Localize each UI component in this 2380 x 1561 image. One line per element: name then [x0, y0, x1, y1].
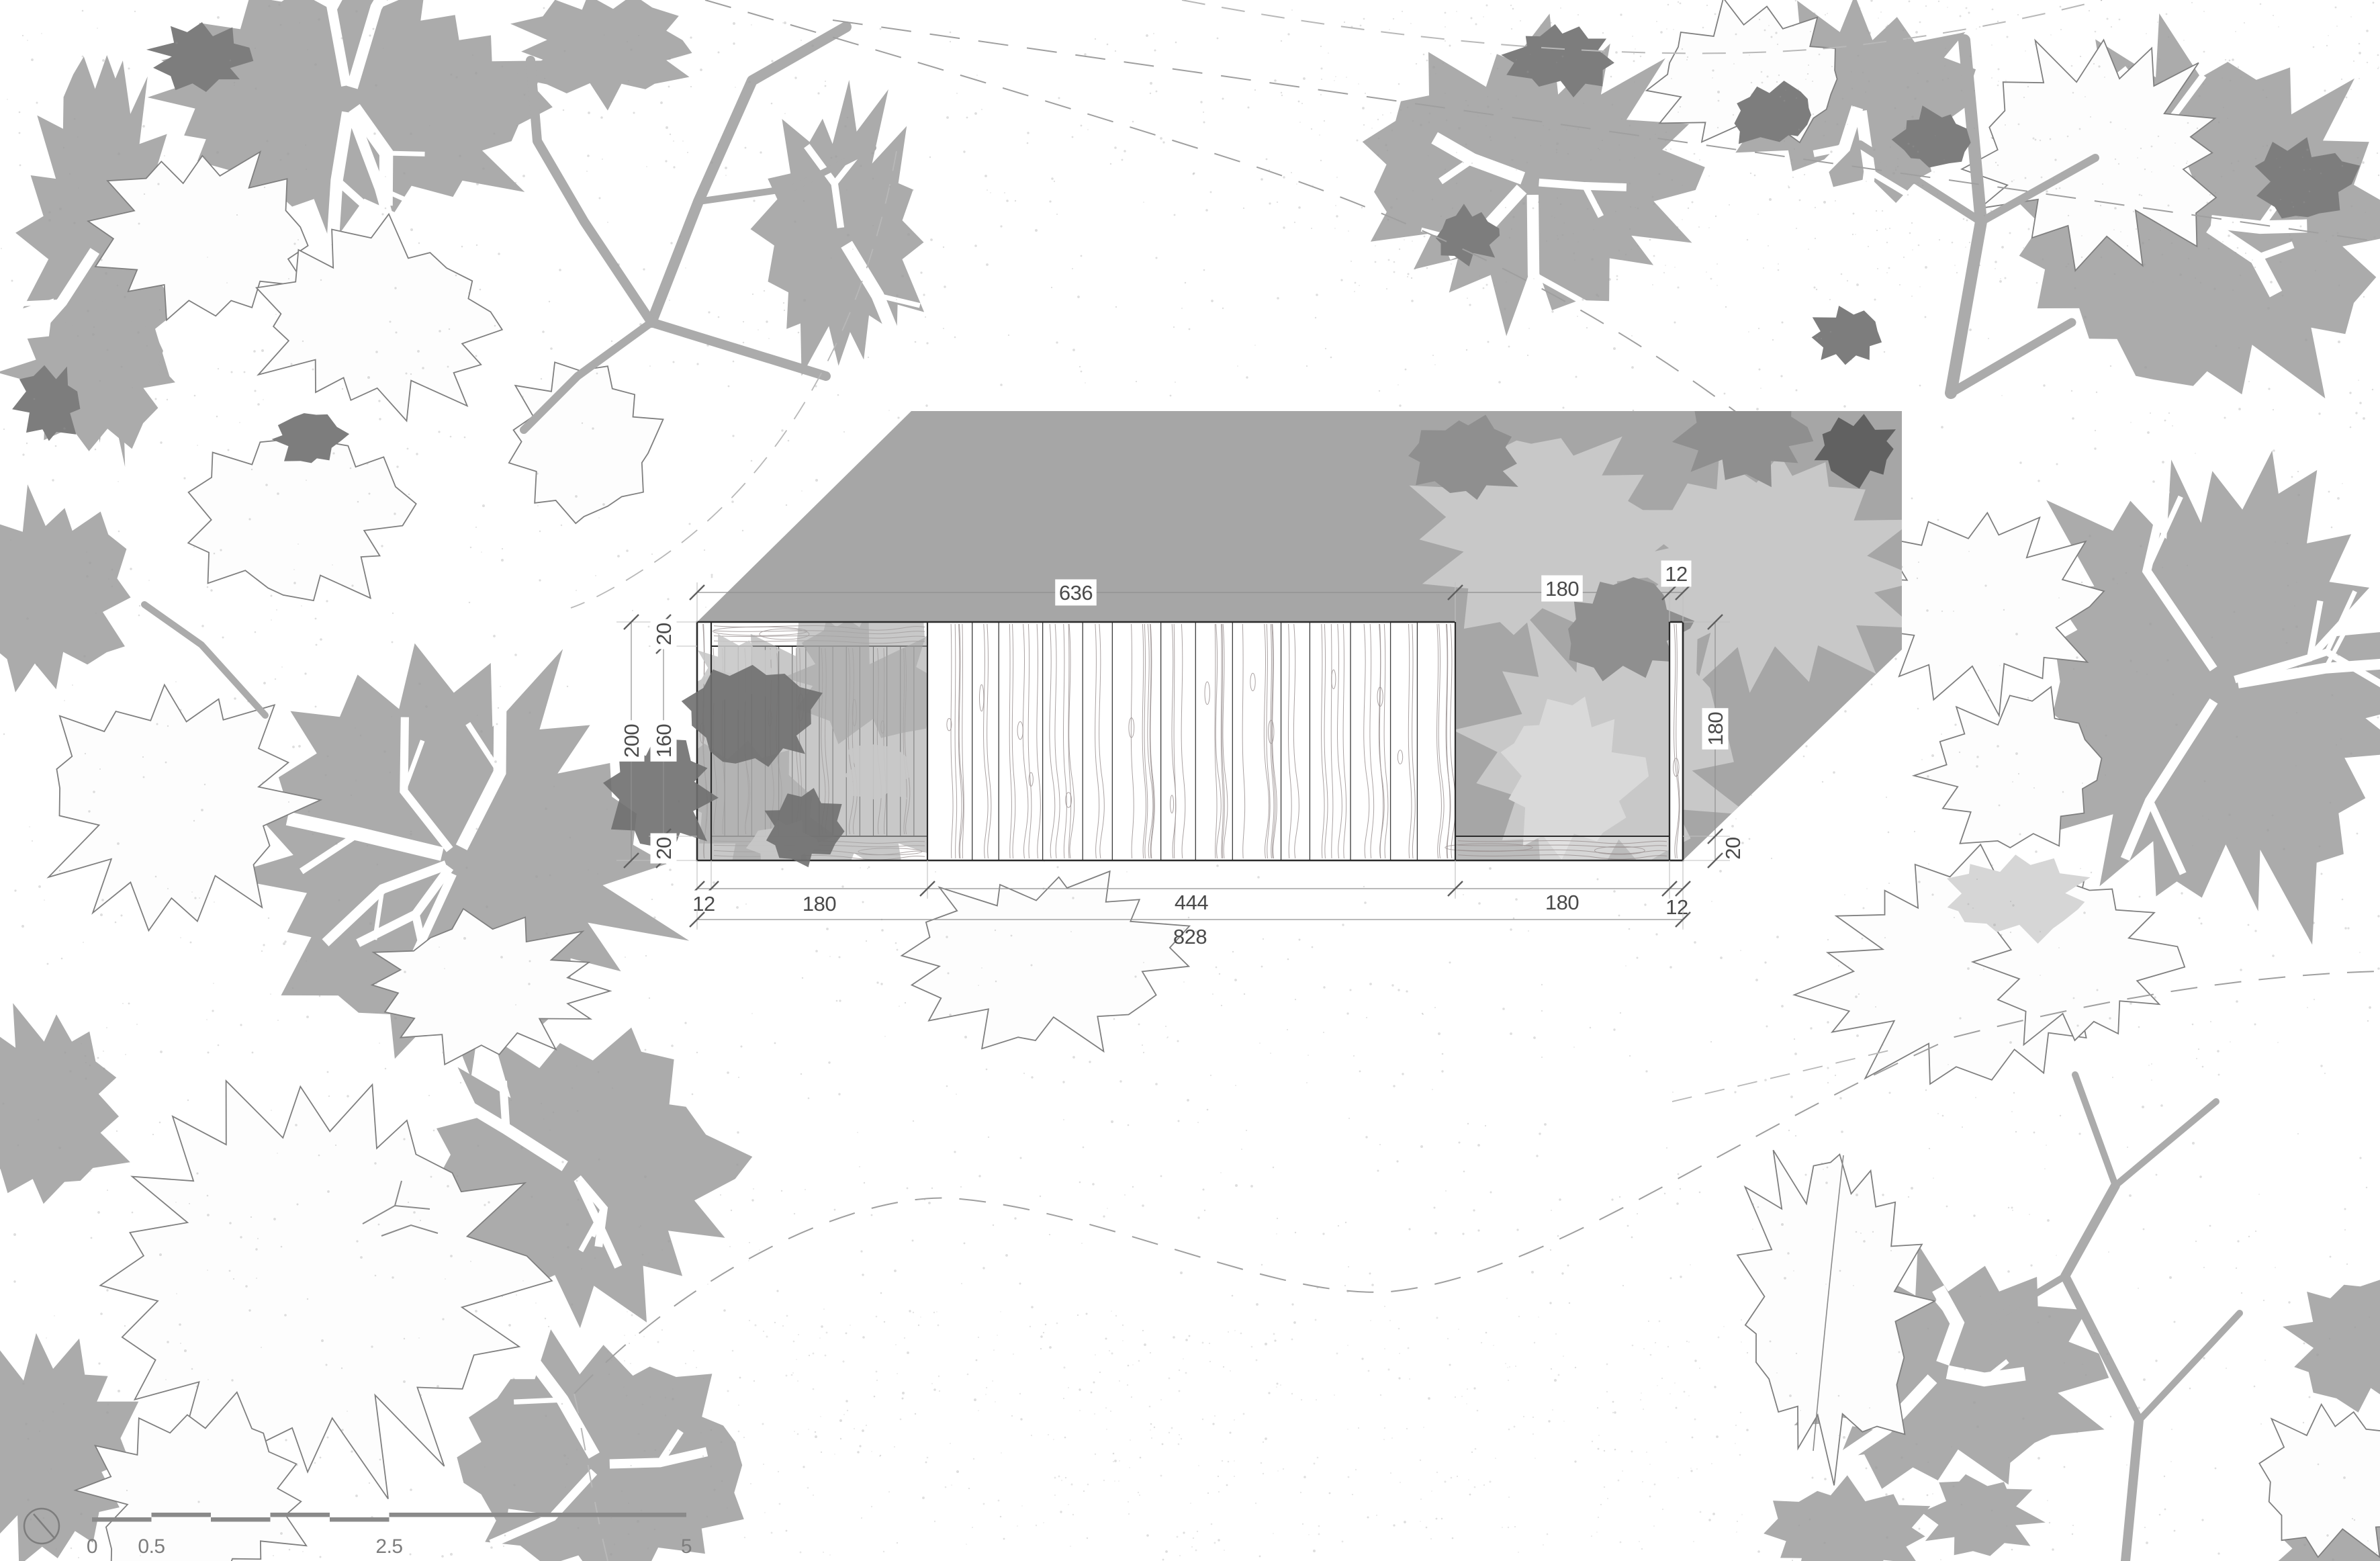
stipple-dot — [271, 595, 273, 597]
stipple-dot — [1561, 1272, 1563, 1274]
stipple-dot — [2060, 1115, 2061, 1116]
stipple-dot — [1190, 1503, 1191, 1504]
stipple-dot — [302, 341, 304, 342]
stipple-dot — [1587, 208, 1589, 210]
stipple-dot — [2374, 236, 2376, 238]
stipple-dot — [107, 1190, 108, 1191]
stipple-dot — [2270, 281, 2273, 283]
stipple-dot — [1776, 1372, 1777, 1373]
stipple-dot — [894, 1269, 897, 1272]
stipple-dot — [383, 48, 384, 49]
stipple-dot — [1393, 1524, 1395, 1526]
stipple-dot — [2149, 623, 2152, 625]
stipple-dot — [617, 263, 620, 266]
stipple-dot — [1794, 148, 1795, 150]
stipple-dot — [155, 876, 157, 878]
stipple-dot — [1345, 1222, 1346, 1223]
stipple-dot — [1387, 219, 1389, 220]
stipple-dot — [794, 220, 796, 222]
stipple-dot — [2335, 7, 2337, 9]
stipple-dot — [793, 1341, 795, 1343]
stipple-dot — [960, 1186, 962, 1188]
stipple-dot — [1557, 238, 1559, 240]
stipple-dot — [1223, 1366, 1224, 1368]
stipple-dot — [2240, 969, 2242, 971]
stipple-dot — [933, 1312, 935, 1313]
stipple-dot — [1771, 858, 1772, 859]
stipple-dot — [2226, 1368, 2227, 1369]
stipple-dot — [920, 271, 922, 273]
stipple-dot — [404, 1338, 405, 1339]
stipple-dot — [1608, 278, 1611, 281]
stipple-dot — [1756, 408, 1759, 410]
stipple-dot — [1000, 1311, 1001, 1312]
stipple-dot — [2162, 254, 2163, 255]
stipple-dot — [77, 335, 79, 337]
stipple-dot — [183, 477, 185, 479]
stipple-dot — [2336, 26, 2338, 27]
stipple-dot — [130, 568, 132, 570]
stipple-dot — [1169, 1378, 1171, 1380]
stipple-dot — [2303, 169, 2305, 171]
stipple-dot — [1734, 1091, 1736, 1093]
stipple-dot — [2209, 1225, 2211, 1227]
stipple-dot — [1146, 34, 1148, 37]
stipple-dot — [2303, 1343, 2305, 1345]
stipple-dot — [1882, 1194, 1884, 1196]
stipple-dot — [2023, 97, 2025, 98]
stipple-dot — [190, 942, 192, 944]
stipple-dot — [2094, 1333, 2095, 1334]
stipple-dot — [632, 610, 633, 611]
stipple-dot — [1919, 21, 1921, 24]
stipple-dot — [981, 967, 982, 969]
stipple-dot — [1205, 209, 1208, 212]
stipple-dot — [1937, 519, 1939, 521]
stipple-dot — [447, 366, 449, 368]
stipple-dot — [1625, 965, 1626, 966]
stipple-dot — [261, 950, 263, 952]
stipple-dot — [1093, 1382, 1095, 1384]
stipple-dot — [2089, 10, 2090, 11]
stipple-dot — [207, 586, 209, 588]
stipple-dot — [2279, 167, 2281, 168]
stipple-dot — [966, 117, 968, 119]
stipple-dot — [930, 238, 933, 241]
stipple-dot — [88, 810, 90, 812]
stipple-dot — [2130, 422, 2131, 422]
stipple-dot — [2076, 656, 2078, 659]
stipple-dot — [837, 394, 839, 396]
stipple-dot — [939, 1390, 940, 1392]
stipple-dot — [27, 40, 28, 41]
stipple-dot — [2146, 674, 2148, 675]
stipple-dot — [2291, 476, 2293, 478]
stipple-dot — [815, 1431, 816, 1433]
stipple-dot — [59, 870, 60, 871]
stipple-dot — [392, 613, 394, 614]
stipple-dot — [159, 1122, 161, 1124]
stipple-dot — [803, 200, 805, 202]
stipple-dot — [655, 1449, 657, 1452]
stipple-dot — [2359, 52, 2361, 54]
stipple-dot — [1301, 1399, 1302, 1400]
stipple-dot — [588, 869, 589, 871]
stipple-dot — [2173, 165, 2175, 167]
stipple-dot — [52, 479, 54, 481]
stipple-dot — [537, 505, 539, 506]
stipple-dot — [614, 1544, 616, 1546]
stipple-dot — [725, 167, 727, 169]
stipple-dot — [2228, 234, 2230, 237]
stipple-dot — [1219, 973, 1220, 975]
stipple-dot — [93, 791, 95, 793]
stipple-dot — [1485, 1332, 1487, 1334]
stipple-dot — [826, 1332, 828, 1334]
stipple-dot — [1070, 1546, 1071, 1547]
stipple-dot — [1637, 1213, 1638, 1214]
stipple-dot — [1914, 831, 1915, 832]
stipple-dot — [1903, 257, 1905, 258]
stipple-dot — [1642, 1481, 1643, 1482]
stipple-dot — [779, 1503, 781, 1505]
stipple-dot — [1463, 894, 1464, 895]
stipple-dot — [1136, 381, 1137, 382]
stipple-dot — [1516, 1229, 1518, 1231]
stipple-dot — [2367, 62, 2368, 63]
stipple-dot — [320, 279, 322, 281]
stipple-dot — [1577, 14, 1579, 15]
stipple-dot — [1916, 1443, 1918, 1445]
stipple-dot — [1911, 498, 1913, 500]
stipple-dot — [1160, 137, 1162, 140]
stipple-dot — [1122, 1325, 1124, 1326]
stipple-dot — [2324, 1073, 2326, 1074]
stipple-dot — [2378, 175, 2379, 176]
stipple-dot — [884, 1036, 885, 1036]
stipple-dot — [561, 525, 562, 526]
stipple-dot — [1856, 1194, 1858, 1196]
stipple-dot — [2008, 1207, 2009, 1208]
stipple-dot — [968, 1488, 970, 1489]
stipple-dot — [834, 1209, 836, 1211]
stipple-dot — [1803, 756, 1805, 758]
stipple-dot — [1634, 157, 1635, 159]
stipple-dot — [2017, 14, 2019, 15]
stipple-dot — [1666, 28, 1667, 30]
stipple-dot — [1961, 90, 1962, 91]
stipple-dot — [2248, 924, 2250, 926]
stipple-dot — [97, 1211, 100, 1214]
stipple-dot — [1040, 1348, 1042, 1349]
stipple-dot — [978, 1410, 979, 1411]
stipple-dot — [966, 1544, 967, 1545]
stipple-dot — [64, 1052, 66, 1054]
stipple-dot — [1648, 1321, 1649, 1322]
stipple-dot — [2102, 183, 2103, 185]
stipple-dot — [1306, 1082, 1308, 1083]
stipple-dot — [1095, 38, 1096, 40]
stipple-dot — [1649, 138, 1651, 140]
stipple-dot — [244, 371, 246, 373]
stipple-dot — [1590, 1027, 1591, 1028]
stipple-dot — [2194, 176, 2196, 178]
stipple-dot — [1655, 134, 1656, 135]
stipple-dot — [1095, 1454, 1096, 1455]
stipple-dot — [1487, 341, 1490, 343]
stipple-dot — [946, 936, 948, 938]
stipple-dot — [2082, 783, 2083, 784]
stipple-dot — [1925, 266, 1927, 269]
stipple-dot — [1740, 950, 1741, 951]
stipple-dot — [1754, 175, 1756, 177]
stipple-dot — [642, 1404, 643, 1405]
stipple-dot — [371, 1345, 373, 1347]
stipple-dot — [1432, 199, 1434, 201]
stipple-dot — [1687, 56, 1688, 58]
stipple-dot — [1471, 163, 1473, 164]
stipple-dot — [2203, 114, 2204, 116]
stipple-dot — [1866, 1468, 1868, 1470]
stipple-dot — [373, 28, 375, 30]
stipple-dot — [1466, 1403, 1467, 1404]
stipple-dot — [1546, 240, 1547, 242]
stipple-dot — [753, 199, 755, 202]
stipple-dot — [1997, 21, 1999, 22]
stipple-dot — [2215, 1468, 2217, 1470]
stipple-dot — [1714, 1386, 1716, 1388]
stipple-dot — [1445, 1190, 1447, 1192]
stipple-dot — [1204, 1210, 1205, 1211]
stipple-dot — [1266, 159, 1268, 161]
stipple-dot — [1659, 1321, 1661, 1323]
stipple-dot — [378, 400, 380, 402]
stipple-dot — [1972, 907, 1974, 909]
stipple-dot — [154, 1227, 156, 1229]
stipple-dot — [2207, 202, 2209, 204]
stipple-dot — [2040, 140, 2041, 141]
stipple-dot — [1890, 1250, 1892, 1251]
stipple-dot — [1649, 1496, 1651, 1498]
stipple-dot — [2340, 738, 2341, 739]
stipple-dot — [1235, 1184, 1238, 1187]
stipple-dot — [1483, 287, 1485, 289]
stipple-dot — [1951, 1446, 1952, 1447]
stipple-dot — [117, 285, 118, 286]
stipple-dot — [763, 1331, 764, 1332]
stipple-dot — [214, 901, 215, 903]
stipple-dot — [1375, 261, 1377, 263]
stipple-dot — [2300, 226, 2302, 228]
stipple-dot — [624, 1335, 625, 1336]
stipple-dot — [2326, 240, 2327, 242]
stipple-dot — [261, 1347, 262, 1348]
stipple-dot — [696, 1052, 698, 1053]
stipple-dot — [988, 1136, 989, 1138]
stipple-dot — [553, 1112, 554, 1113]
stipple-dot — [1913, 183, 1915, 185]
stipple-dot — [809, 1355, 810, 1356]
stipple-dot — [1265, 1437, 1267, 1440]
stipple-dot — [1688, 1395, 1690, 1396]
stipple-dot — [1710, 278, 1712, 280]
stipple-dot — [1637, 208, 1639, 209]
stipple-dot — [1234, 1330, 1236, 1331]
stipple-dot — [106, 1289, 108, 1291]
stipple-dot — [700, 1432, 702, 1433]
stipple-dot — [46, 1337, 46, 1338]
stipple-dot — [1515, 1366, 1516, 1367]
stipple-dot — [379, 1042, 380, 1044]
stipple-dot — [102, 59, 105, 62]
stipple-dot — [549, 875, 551, 877]
stipple-dot — [1308, 1534, 1309, 1535]
stipple-dot — [929, 157, 931, 158]
stipple-dot — [1877, 268, 1878, 269]
stipple-dot — [1984, 215, 1985, 216]
stipple-dot — [950, 32, 952, 34]
stipple-dot — [1592, 1441, 1593, 1442]
stipple-dot — [839, 956, 841, 958]
site-plan-drawing: 636180121218044418012828200201602018020 … — [0, 0, 2380, 1561]
stipple-dot — [1423, 1427, 1424, 1428]
stipple-dot — [1445, 40, 1446, 42]
stipple-dot — [651, 1368, 653, 1369]
stipple-dot — [1530, 54, 1530, 54]
stipple-dot — [502, 548, 503, 549]
stipple-dot — [1631, 366, 1634, 369]
tree-branch-gap — [1539, 183, 1627, 187]
stipple-dot — [1060, 1511, 1062, 1513]
stipple-dot — [189, 1203, 190, 1204]
stipple-dot — [1824, 1478, 1827, 1480]
stipple-dot — [318, 1155, 320, 1157]
stipple-dot — [1711, 1463, 1712, 1464]
stipple-dot — [1616, 279, 1618, 281]
stipple-dot — [1313, 1550, 1316, 1552]
stipple-dot — [2144, 169, 2146, 170]
stipple-dot — [2126, 1464, 2127, 1466]
stipple-dot — [2191, 214, 2193, 215]
stipple-dot — [1921, 759, 1923, 760]
stipple-dot — [1716, 1435, 1719, 1438]
stipple-dot — [2305, 339, 2307, 341]
dimension-label: 180 — [1702, 708, 1729, 750]
stipple-dot — [1268, 1392, 1270, 1394]
stipple-dot — [938, 1376, 940, 1377]
stipple-dot — [1011, 935, 1013, 937]
stipple-dot — [808, 1429, 809, 1430]
stipple-dot — [1827, 939, 1829, 940]
stipple-dot — [1637, 957, 1639, 959]
stipple-dot — [1656, 21, 1657, 22]
stipple-dot — [1129, 1467, 1130, 1468]
stipple-dot — [1771, 36, 1773, 38]
stipple-dot — [1291, 1339, 1293, 1341]
stipple-dot — [823, 1308, 825, 1310]
stipple-dot — [360, 1256, 363, 1259]
stipple-dot — [831, 257, 831, 258]
stipple-dot — [1048, 1434, 1049, 1435]
stipple-dot — [1404, 239, 1405, 240]
stipple-dot — [233, 1278, 234, 1280]
stipple-dot — [2230, 80, 2232, 82]
dimension-value: 828 — [1173, 925, 1207, 948]
stipple-dot — [862, 901, 864, 903]
stipple-dot — [1420, 1460, 1421, 1461]
stipple-dot — [751, 24, 752, 26]
stipple-dot — [742, 530, 743, 531]
stipple-dot — [275, 314, 277, 315]
stipple-dot — [1183, 981, 1185, 983]
stipple-dot — [1428, 155, 1428, 156]
stipple-dot — [1485, 1125, 1486, 1126]
stipple-dot — [320, 638, 322, 641]
stipple-dot — [1620, 1542, 1622, 1544]
stipple-dot — [949, 1014, 952, 1016]
stipple-dot — [1420, 124, 1422, 126]
stipple-dot — [1615, 211, 1616, 212]
stipple-dot — [1445, 1481, 1447, 1483]
stipple-dot — [1351, 26, 1353, 28]
stipple-dot — [640, 1225, 641, 1226]
stipple-dot — [2112, 1077, 2113, 1078]
stipple-dot — [1776, 936, 1779, 938]
stipple-dot — [1128, 1513, 1130, 1515]
stipple-dot — [564, 50, 566, 52]
stipple-dot — [1056, 1323, 1058, 1325]
stipple-dot — [978, 985, 979, 986]
stipple-dot — [786, 1530, 788, 1532]
stipple-dot — [1209, 1343, 1210, 1344]
stipple-dot — [1035, 229, 1038, 232]
stipple-dot — [1712, 77, 1713, 79]
stipple-dot — [805, 1189, 806, 1190]
stipple-dot — [2189, 1388, 2191, 1390]
stipple-dot — [1177, 1040, 1179, 1042]
stipple-dot — [1241, 1149, 1242, 1150]
stipple-dot — [1451, 263, 1452, 265]
dimension-label: 12 — [1665, 895, 1688, 919]
stipple-dot — [1998, 81, 1999, 82]
stipple-dot — [1703, 128, 1704, 130]
stipple-dot — [2151, 1079, 2152, 1081]
stipple-dot — [2012, 1210, 2013, 1211]
stipple-dot — [1317, 1287, 1319, 1289]
stipple-dot — [1556, 62, 1557, 63]
stipple-dot — [404, 971, 406, 973]
stipple-dot — [1428, 122, 1430, 123]
stipple-dot — [651, 899, 653, 900]
stipple-dot — [132, 1212, 134, 1214]
stipple-dot — [1077, 296, 1080, 298]
stipple-dot — [1940, 1559, 1941, 1560]
stipple-dot — [628, 1533, 630, 1535]
stipple-dot — [516, 1294, 517, 1296]
stipple-dot — [1083, 1147, 1085, 1149]
stipple-dot — [1142, 1204, 1144, 1207]
stipple-dot — [1740, 1412, 1741, 1413]
stipple-dot — [61, 958, 63, 960]
stipple-dot — [1821, 1163, 1823, 1165]
stipple-dot — [1796, 1353, 1797, 1354]
stipple-dot — [2144, 1527, 2146, 1528]
stipple-dot — [732, 435, 734, 437]
dimension-label: 180 — [798, 891, 840, 917]
stipple-dot — [1436, 1317, 1438, 1319]
stipple-dot — [2196, 1058, 2197, 1059]
stipple-dot — [1357, 140, 1359, 142]
